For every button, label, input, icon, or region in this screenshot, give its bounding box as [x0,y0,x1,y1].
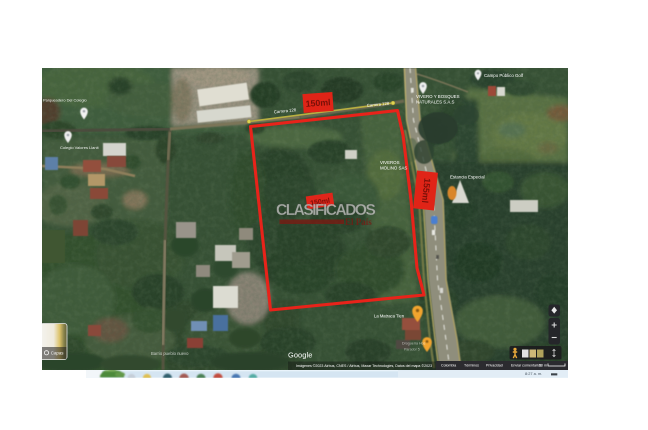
svg-text:Colegio Valores Llanit: Colegio Valores Llanit [60,145,100,150]
svg-text:Términos: Términos [464,364,479,368]
svg-text:Barrio pueblo nuevo: Barrio pueblo nuevo [151,351,189,356]
svg-text:Privacidad: Privacidad [486,364,503,368]
svg-text:Parador 5: Parador 5 [404,348,420,352]
svg-text:8:27 a. m.: 8:27 a. m. [525,371,542,376]
svg-text:El País: El País [345,217,372,227]
svg-text:50 m: 50 m [539,364,547,368]
svg-text:Parqueadero Del Colegio: Parqueadero Del Colegio [43,98,87,103]
svg-text:La Matraca Tien: La Matraca Tien [374,314,405,319]
svg-text:MOLINO SAS: MOLINO SAS [380,166,407,171]
svg-text:Droguería Hos: Droguería Hos [402,342,426,346]
svg-text:VIVEROS: VIVEROS [380,160,400,165]
svg-text:Enviar comentarios: Enviar comentarios [511,364,542,368]
svg-text:Google: Google [288,351,312,360]
svg-text:NATURALES S.A.S: NATURALES S.A.S [416,100,455,105]
svg-text:VIVERO Y BOSQUES: VIVERO Y BOSQUES [416,94,460,99]
svg-text:Colombia: Colombia [441,364,456,368]
svg-text:150ml: 150ml [305,97,331,109]
svg-text:Imágenes ©2023 Airbus, CNES /: Imágenes ©2023 Airbus, CNES / Airbus, Ma… [296,364,432,368]
svg-text:Capas: Capas [51,350,64,355]
svg-text:Campo Público Golf: Campo Público Golf [484,73,524,78]
svg-text:Estancia Especial: Estancia Especial [450,175,485,180]
